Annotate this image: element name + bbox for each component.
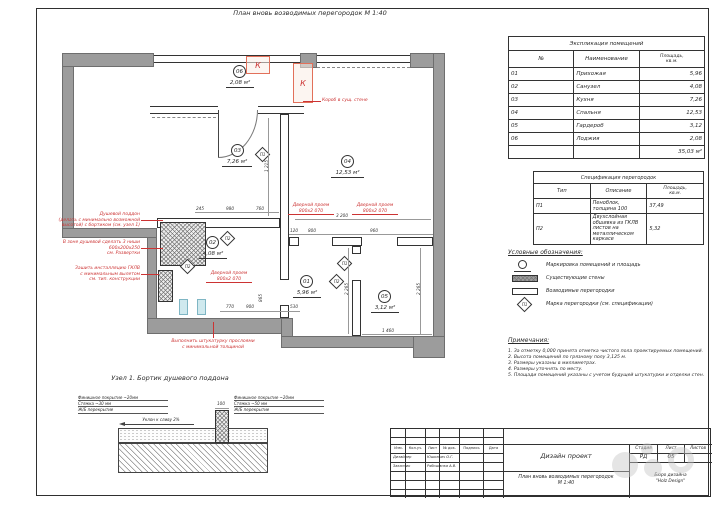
- detail-title: Узел 1. Бортик душевого поддона: [60, 374, 280, 382]
- titleblock-line: [391, 471, 503, 472]
- titleblock-line: [483, 429, 484, 498]
- cell-name: Прихожая: [574, 68, 639, 81]
- cell-area: 5,96: [639, 68, 704, 81]
- wall-kitchen-bottom: [62, 228, 157, 238]
- towel-radiator-2: [197, 299, 206, 315]
- tb-col-label: Изм.: [392, 446, 405, 450]
- cell-area: 12,53: [639, 107, 704, 120]
- table-row: 01Прихожая5,96: [509, 68, 705, 81]
- dim-text: 2 265: [344, 283, 349, 295]
- legend-label: Возводимые перегородки: [546, 288, 696, 294]
- tb-company: Бюро дизайна "Holz Design": [630, 473, 711, 484]
- legend-label: Маркировка помещений и площадь: [546, 262, 696, 268]
- watermark-logo: [644, 459, 662, 477]
- col-header-name: Наименование: [574, 51, 639, 68]
- tb-col-label: Подпись: [460, 446, 483, 450]
- shower-tray-hatch: [160, 222, 206, 266]
- titleblock-line: [391, 453, 503, 454]
- cell-desc: Пеноблок, толщина 100: [590, 199, 647, 214]
- wall-bottom-1: [147, 318, 293, 334]
- table-row: 06Лоджия2,08: [509, 133, 705, 146]
- cell-desc: Двухслойная обшивка из ГКЛВ листов на ме…: [590, 214, 647, 245]
- overhead-dashed-line-2: [152, 117, 216, 118]
- room-area-05: 3,12 м²: [371, 305, 399, 313]
- titleblock-line: [391, 444, 712, 445]
- cell-name: Лоджия: [574, 133, 639, 146]
- annotation-niches: В зоне душевой сделать 3 ниши 600х200х25…: [35, 240, 140, 257]
- balcony-block-wall-b: [258, 106, 304, 114]
- col-header-area: Площадь, кв.м.: [639, 51, 704, 68]
- tb-name-designer: Юшкевич О.Г.: [427, 455, 482, 459]
- duct-annotation: Короб в сущ. стене: [322, 98, 392, 104]
- col-header-area-line: кв.м.: [642, 59, 702, 64]
- dim-text: 120: [290, 228, 298, 233]
- tb-role-designer: Дизайнер: [393, 455, 425, 459]
- leader-line: [141, 248, 163, 249]
- partition-mark-label: П1: [522, 302, 528, 307]
- dim-text: 760: [256, 206, 264, 211]
- annotation-line: см. Развертки: [35, 251, 140, 257]
- partition-h1-c: [397, 237, 433, 246]
- leader-line-vertical: [213, 322, 214, 338]
- cell-name: Спальня: [574, 107, 639, 120]
- detail-curb: [215, 410, 229, 443]
- watermark-logo: [612, 452, 638, 478]
- cell-type: П1: [534, 199, 591, 214]
- note-line: Ж/Б перекрытие: [78, 407, 168, 413]
- cell-num: 03: [509, 94, 574, 107]
- cell-type: П2: [534, 214, 591, 245]
- legend-symbol-existing-wall: [512, 275, 538, 282]
- page-title: План вновь возводимых перегородок М 1:40: [150, 9, 470, 17]
- table-row: 05Гардероб3,12: [509, 120, 705, 133]
- note-item: 5. Площади помещений указаны с учетом бу…: [508, 373, 708, 379]
- cell-area: 7,26: [639, 94, 704, 107]
- tb-role-client: Заказчик: [393, 464, 425, 468]
- room-area-04: 12,53 м²: [331, 170, 364, 178]
- partition-mark-label: П1: [342, 261, 348, 266]
- duct-leader-line: [303, 101, 321, 102]
- dim-text: 770: [226, 304, 234, 309]
- titleblock-line: [503, 429, 504, 498]
- cell-name: Гардероб: [574, 120, 639, 133]
- room-marker-01: 01: [300, 275, 313, 288]
- tb-name-client: Рябошапка А.В.: [427, 464, 482, 468]
- titleblock-line: [503, 471, 629, 472]
- tb-col-label: Лист: [426, 446, 439, 450]
- cell-empty: [509, 146, 574, 159]
- wall-top-left: [62, 53, 154, 67]
- cell-num: 02: [509, 81, 574, 94]
- annotation-line: Выполнить штукатурку прослоями: [160, 339, 266, 345]
- room-marker-03: 03: [231, 144, 244, 157]
- explication-table: Экспликация помещений № Наименование Пло…: [508, 36, 705, 159]
- room-marker-05: 05: [378, 290, 391, 303]
- room-area-06: 2,08 м²: [226, 80, 254, 88]
- partition-mark-label: П1: [260, 152, 266, 157]
- window-bedroom: [317, 55, 410, 63]
- towel-radiator-1: [179, 299, 188, 315]
- watermark-logo: [641, 443, 653, 455]
- dim-line: [289, 234, 433, 235]
- detail-right-note: Финишное покрытие ~20мм Стяжка ~50 мм Ж/…: [234, 395, 324, 414]
- leader-line: [141, 274, 159, 275]
- tb-company-line: "Holz Design": [630, 479, 711, 485]
- installation-box-hatch: [158, 270, 173, 302]
- titleblock-line: [425, 429, 426, 498]
- door-opening-label: Дверной проем 800х2 070: [288, 203, 334, 215]
- tb-drawing-title: План вновь возводимых перегородок М 1:40: [504, 475, 628, 487]
- room-area-01: 5,96 м²: [293, 290, 321, 298]
- partition-v2-lower: [352, 280, 361, 336]
- cell-name: Кухня: [574, 94, 639, 107]
- detail-slab: [118, 443, 268, 473]
- detail-screed-layer: [118, 428, 268, 443]
- room-marker-06: 06: [233, 65, 246, 78]
- legend-symbol-room-marker-line: [514, 271, 531, 272]
- legend-symbol-room-marker: [518, 260, 527, 269]
- legend-title: Условные обозначения:: [508, 249, 583, 256]
- table-row: П2Двухслойная обшивка из ГКЛВ листов на …: [534, 214, 704, 245]
- cell-area: 3,12: [639, 120, 704, 133]
- overhead-dashed-line: [317, 67, 410, 68]
- col-header-type: Тип: [534, 184, 591, 199]
- partition-mark-label: П2: [225, 236, 231, 241]
- titleblock-line: [391, 437, 503, 438]
- titleblock: Изм. Кол.уч. Лист № док. Подпись Дата Ди…: [390, 428, 711, 497]
- dim-line: [215, 408, 229, 409]
- table-row: 02Санузел4,08: [509, 81, 705, 94]
- titleblock-line: [391, 480, 503, 481]
- partition-h1-a: [289, 237, 299, 246]
- room-area-02: 4,08 м²: [199, 251, 227, 259]
- cell-name: Санузел: [574, 81, 639, 94]
- dim-line: [362, 334, 432, 335]
- partition-mark-label: П2: [334, 279, 340, 284]
- col-header-desc: Описание: [590, 184, 647, 199]
- partition-mark-label: П2: [185, 264, 191, 269]
- wall-right: [433, 53, 445, 348]
- partition-v2-upper: [352, 246, 361, 254]
- detail-left-note: Финишное покрытие ~20мм Стяжка ~30 мм Ж/…: [78, 395, 168, 414]
- annotation-shower-tray: Душевой поддон (делать с минимально возм…: [35, 212, 140, 229]
- cell-empty: [574, 146, 639, 159]
- dim-text: 245: [196, 206, 204, 211]
- arrow-head-icon: [119, 422, 125, 426]
- col-header-area-line: кв.м.: [649, 191, 701, 196]
- dim-text: 800: [308, 228, 316, 233]
- ac-unit-marker-2: К: [293, 63, 313, 103]
- detail-curb-dim: 100: [217, 401, 225, 406]
- dim-text: 960: [370, 228, 378, 233]
- dim-text: 980: [226, 206, 234, 211]
- note-line: Ж/Б перекрытие: [234, 407, 324, 413]
- cell-area: 5,32: [647, 214, 704, 245]
- legend-label: Марка перегородки (см. спецификации): [546, 301, 706, 307]
- partition-v1-upper: [280, 114, 289, 280]
- dim-text: 1 215: [264, 160, 269, 172]
- detail-slope-label: Уклон к сливу 2%: [125, 417, 197, 422]
- dim-line: [295, 219, 431, 220]
- table-row: П1Пеноблок, толщина 10037,49: [534, 199, 704, 214]
- wall-corner-block: [413, 336, 445, 358]
- tb-col-label: № док.: [440, 446, 459, 450]
- dim-text: 900: [246, 304, 254, 309]
- balcony-block-wall-a: [150, 106, 218, 114]
- ac-unit-marker-1: К: [246, 56, 270, 74]
- watermark-logo: [668, 447, 694, 473]
- dim-text: 865: [258, 294, 263, 302]
- annotation-line: с минимальной толщиной: [160, 345, 266, 351]
- cell-area: 4,08: [639, 81, 704, 94]
- dim-text: 2 265: [416, 283, 421, 295]
- annotation-line: см. тип. конструкции: [35, 277, 140, 283]
- explication-title: Экспликация помещений: [509, 37, 705, 51]
- dim-line: [220, 311, 300, 312]
- wall-left: [62, 53, 74, 237]
- tb-col-label: Кол.уч.: [406, 446, 425, 450]
- room-area-03: 7,26 м²: [222, 159, 252, 167]
- table-row: 03Кухня7,26: [509, 94, 705, 107]
- detail-slope-arrow: [122, 424, 194, 425]
- tb-project-name: Дизайн проект: [503, 452, 629, 460]
- door-opening-label: Дверной проем 800х2 070: [206, 271, 252, 283]
- room-marker-04: 04: [341, 155, 354, 168]
- titleblock-line: [391, 489, 503, 490]
- tb-drawing-scale: М 1:40: [504, 481, 628, 487]
- annotation-plaster: Выполнить штукатурку прослоями с минимал…: [160, 339, 266, 350]
- leader-line: [141, 220, 163, 221]
- titleblock-line: [391, 462, 503, 463]
- cell-num: 04: [509, 107, 574, 120]
- specification-table: Спецификация перегородок Тип Описание Пл…: [533, 171, 704, 245]
- cell-num: 05: [509, 120, 574, 133]
- window-loggia: [154, 55, 300, 63]
- table-total-row: 35,03 м²: [509, 146, 705, 159]
- annotation-installation: Зашить инсталляцию ГКЛВ с минимальным вы…: [35, 266, 140, 283]
- col-header-area: Площадь, кв.м.: [647, 184, 704, 199]
- partition-h1-b: [332, 237, 362, 246]
- room-marker-02: 02: [206, 236, 219, 249]
- cell-area: 37,49: [647, 199, 704, 214]
- dim-text: 530: [290, 304, 298, 309]
- tb-col-label: Дата: [484, 446, 503, 450]
- notes-title: Примечания:: [508, 337, 549, 344]
- drawing-sheet: План вновь возводимых перегородок М 1:40…: [0, 0, 720, 506]
- cell-total: 35,03 м²: [639, 146, 704, 159]
- cell-num: 01: [509, 68, 574, 81]
- cell-num: 06: [509, 133, 574, 146]
- legend-label: Существующие стены: [546, 275, 696, 281]
- legend-symbol-new-partition: [512, 288, 538, 295]
- door-opening-label: Дверной проем 800х2 070: [352, 203, 398, 215]
- notes-list: 1. За отметку 0,000 принята отметка чист…: [508, 349, 708, 379]
- specification-title: Спецификация перегородок: [534, 172, 704, 184]
- dim-line: [195, 212, 279, 213]
- table-row: 04Спальня12,53: [509, 107, 705, 120]
- dim-text: 3 200: [336, 213, 348, 218]
- annotation-line: высотой) с бортиком (см. узел 1): [35, 223, 140, 229]
- dim-text: 1 460: [382, 328, 394, 333]
- col-header-num: №: [509, 51, 574, 68]
- cell-area: 2,08: [639, 133, 704, 146]
